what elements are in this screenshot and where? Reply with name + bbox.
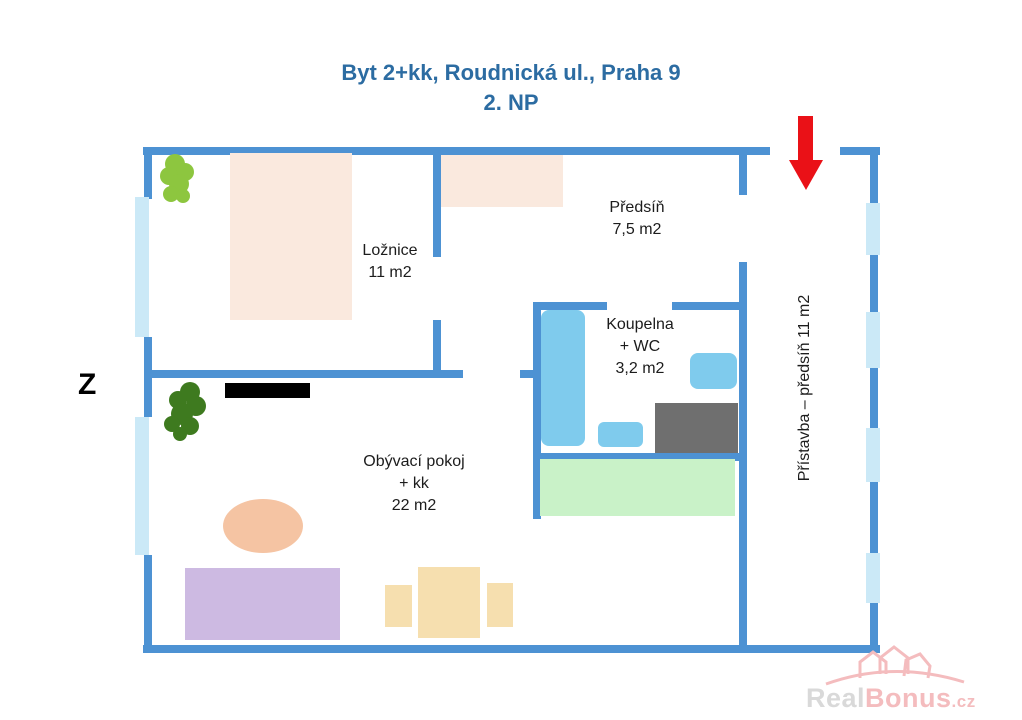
bed	[230, 153, 352, 320]
toilet	[598, 422, 643, 447]
room-area: 7,5 m2	[567, 219, 707, 241]
bedroom-plant-icon	[153, 150, 203, 212]
page-title: Byt 2+kk, Roudnická ul., Praha 9 2. NP	[0, 58, 1022, 118]
wall-left-3	[144, 555, 152, 653]
compass-west-label: Z	[78, 368, 96, 402]
window-left-2	[135, 417, 149, 555]
room-sub: + WC	[570, 336, 710, 358]
wall-bedroom-hall-lower	[433, 320, 441, 377]
wall-bottom	[143, 645, 880, 653]
dining-chair-left	[385, 585, 412, 627]
wall-left-1	[144, 147, 152, 199]
room-area: 3,2 m2	[570, 358, 710, 380]
watermark-cz: .cz	[952, 692, 976, 711]
wall-bedroom-living-left	[144, 370, 463, 378]
room-name: Obývací pokoj	[334, 451, 494, 473]
dining-chair-right	[487, 583, 513, 627]
window-right-3	[866, 428, 880, 482]
room-area: 22 m2	[334, 495, 494, 517]
coffee-table	[223, 499, 303, 553]
window-right-2	[866, 312, 880, 368]
livingroom-plant-icon	[156, 378, 214, 448]
watermark-bonus: Bonus	[865, 683, 952, 713]
window-left-1	[135, 197, 149, 337]
sofa	[185, 568, 340, 640]
title-line-2: 2. NP	[0, 88, 1022, 118]
floorplan-canvas: Byt 2+kk, Roudnická ul., Praha 9 2. NP Z	[0, 0, 1022, 720]
wall-bath-top-left	[533, 302, 607, 310]
window-right-1	[866, 203, 880, 255]
room-label-loznice: Ložnice 11 m2	[320, 240, 460, 284]
watermark: RealBonus.cz	[806, 683, 976, 714]
title-line-1: Byt 2+kk, Roudnická ul., Praha 9	[0, 58, 1022, 88]
entrance-arrow-shaft	[798, 116, 813, 162]
room-name: Ložnice	[320, 240, 460, 262]
wall-bath-top-right	[672, 302, 747, 310]
room-name: Koupelna	[570, 314, 710, 336]
hall-wardrobe	[441, 155, 563, 207]
realbonus-logo-icon	[818, 644, 968, 686]
wall-right-3	[870, 368, 878, 428]
room-area: 11 m2	[320, 262, 460, 284]
room-label-predsin: Předsíň 7,5 m2	[567, 197, 707, 241]
entrance-arrow-head	[789, 160, 823, 190]
room-name: Předsíň	[567, 197, 707, 219]
wall-right-1	[870, 147, 878, 203]
room-label-koupelna: Koupelna + WC 3,2 m2	[570, 314, 710, 380]
window-right-4	[866, 553, 880, 603]
watermark-real: Real	[806, 683, 865, 713]
room-label-obyvaci: Obývací pokoj + kk 22 m2	[334, 451, 494, 517]
room-label-pristavba: Přístavba – předsíň 11 m2	[796, 258, 818, 518]
wall-right-4	[870, 482, 878, 553]
kitchen-counter	[540, 459, 735, 516]
dining-table	[418, 567, 480, 638]
wall-entrance-stub	[739, 155, 747, 195]
room-sub: + kk	[334, 473, 494, 495]
wall-right-2	[870, 255, 878, 312]
washing-machine	[655, 403, 738, 453]
tv-unit	[225, 383, 310, 398]
